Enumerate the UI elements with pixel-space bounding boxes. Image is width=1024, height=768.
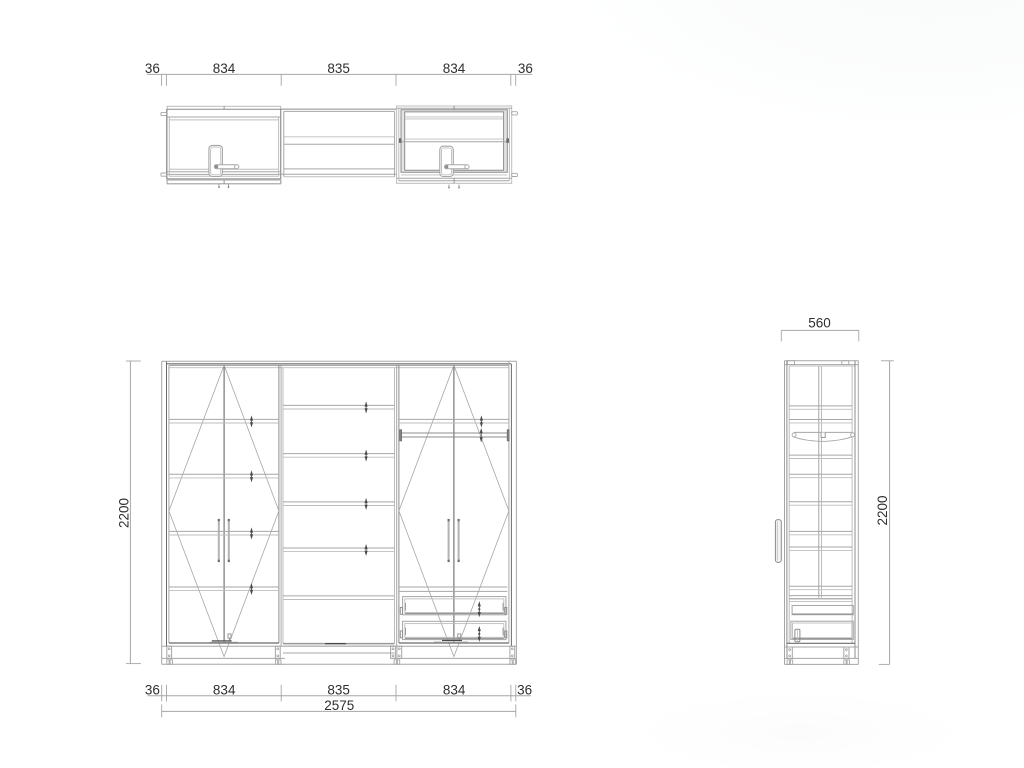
svg-text:36: 36 [518, 61, 533, 76]
svg-text:36: 36 [145, 682, 160, 697]
svg-text:2200: 2200 [875, 495, 890, 525]
svg-text:835: 835 [327, 682, 350, 697]
svg-text:835: 835 [327, 61, 350, 76]
svg-text:834: 834 [213, 682, 236, 697]
svg-text:36: 36 [517, 682, 532, 697]
svg-text:36: 36 [145, 61, 160, 76]
svg-text:834: 834 [213, 61, 236, 76]
svg-text:2575: 2575 [324, 698, 354, 713]
svg-text:2200: 2200 [117, 498, 132, 528]
svg-text:560: 560 [808, 316, 831, 331]
svg-text:834: 834 [443, 61, 466, 76]
svg-text:834: 834 [443, 682, 466, 697]
